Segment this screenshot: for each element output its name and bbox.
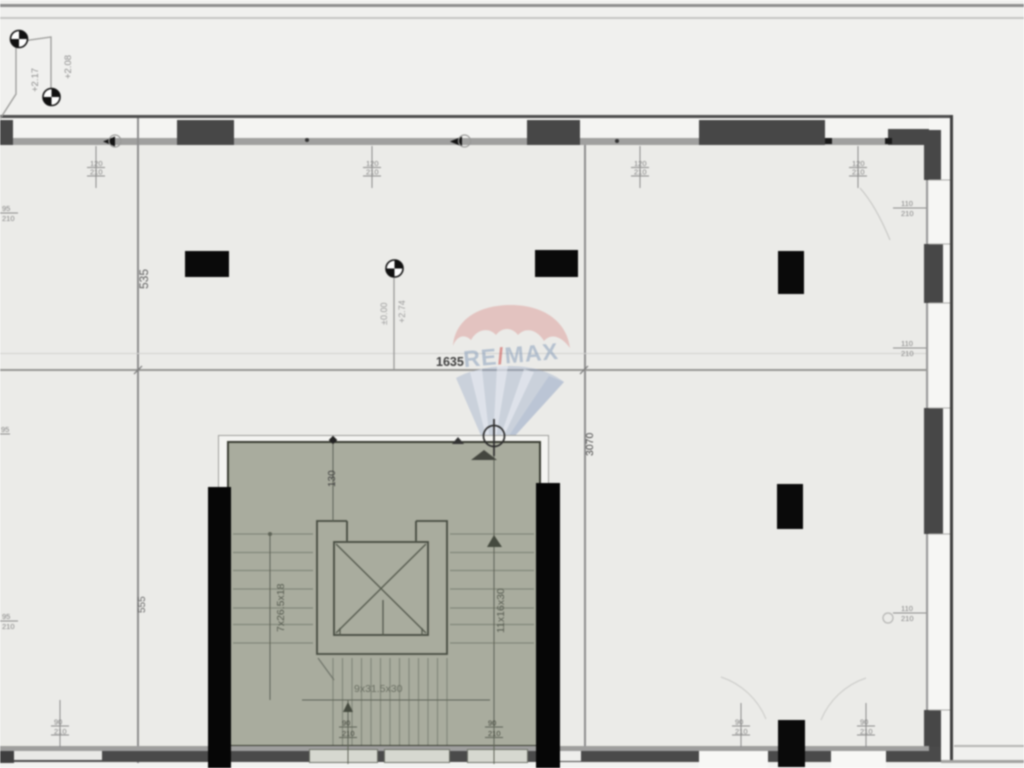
svg-text:210: 210 xyxy=(342,729,355,738)
svg-text:210: 210 xyxy=(901,209,914,218)
svg-text:210: 210 xyxy=(852,168,865,177)
svg-text:110: 110 xyxy=(901,339,913,348)
svg-text:90: 90 xyxy=(488,719,496,728)
svg-text:210: 210 xyxy=(901,349,914,358)
svg-text:110: 110 xyxy=(901,604,913,613)
svg-text:90: 90 xyxy=(735,718,743,727)
svg-text:210: 210 xyxy=(366,168,379,177)
svg-text:210: 210 xyxy=(2,214,15,223)
svg-text:210: 210 xyxy=(735,727,748,736)
svg-text:210: 210 xyxy=(634,168,647,177)
svg-text:210: 210 xyxy=(54,727,67,736)
svg-text:210: 210 xyxy=(860,727,873,736)
svg-text:95: 95 xyxy=(2,204,10,213)
svg-text:210: 210 xyxy=(901,614,914,623)
svg-text:210: 210 xyxy=(2,622,15,631)
svg-text:90: 90 xyxy=(342,719,350,728)
svg-text:95: 95 xyxy=(2,612,10,621)
svg-text:110: 110 xyxy=(901,199,913,208)
svg-text:210: 210 xyxy=(90,168,103,177)
svg-text:95: 95 xyxy=(1,425,9,434)
svg-text:90: 90 xyxy=(860,718,868,727)
svg-text:210: 210 xyxy=(488,729,501,738)
svg-text:90: 90 xyxy=(54,718,62,727)
